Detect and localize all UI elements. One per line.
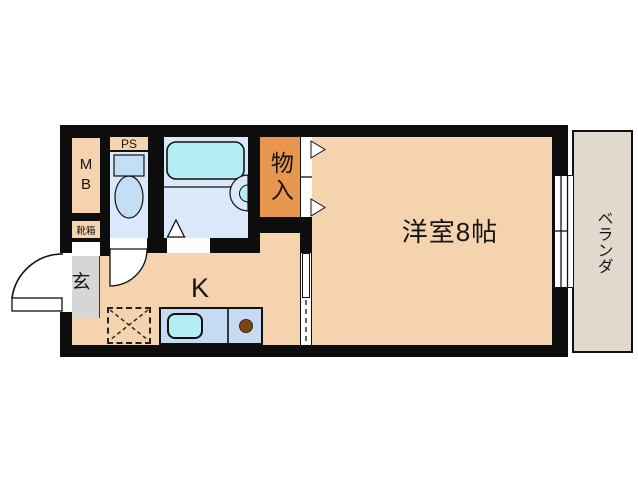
pipe-space: PS — [110, 137, 148, 152]
bathroom-floor — [164, 137, 248, 238]
veranda-label: ベランダ — [591, 210, 615, 274]
bathroom-door-opening — [167, 238, 210, 253]
veranda-area: ベランダ — [572, 130, 633, 353]
entrance-step — [72, 242, 100, 256]
toilet-door-opening — [110, 238, 147, 253]
meter-box: MB — [72, 138, 100, 213]
floor-plan: ベランダ MB 靴箱 PS — [0, 0, 638, 480]
kitchen-floor-patch — [260, 233, 300, 253]
kitchen-label: K — [174, 274, 226, 304]
closet-label: 物入 — [266, 146, 294, 210]
kitchen-sink — [167, 313, 203, 339]
pipe-space-label: PS — [121, 137, 137, 151]
meter-box-label: MB — [78, 156, 95, 196]
main-room-label: 洋室8帖 — [340, 216, 560, 248]
entrance-label: 玄 — [66, 271, 96, 295]
refrigerator-space — [107, 307, 151, 344]
entrance-door-leaf — [12, 298, 62, 311]
shoe-box: 靴箱 — [72, 221, 100, 238]
entrance-door-swing-arc — [12, 254, 63, 298]
closet-folding-door — [300, 137, 312, 217]
shoe-box-label: 靴箱 — [76, 223, 95, 237]
kitchen-room-sliding-door — [300, 253, 312, 345]
toilet-room-floor — [110, 152, 148, 238]
partition-wall-stub — [300, 217, 312, 253]
